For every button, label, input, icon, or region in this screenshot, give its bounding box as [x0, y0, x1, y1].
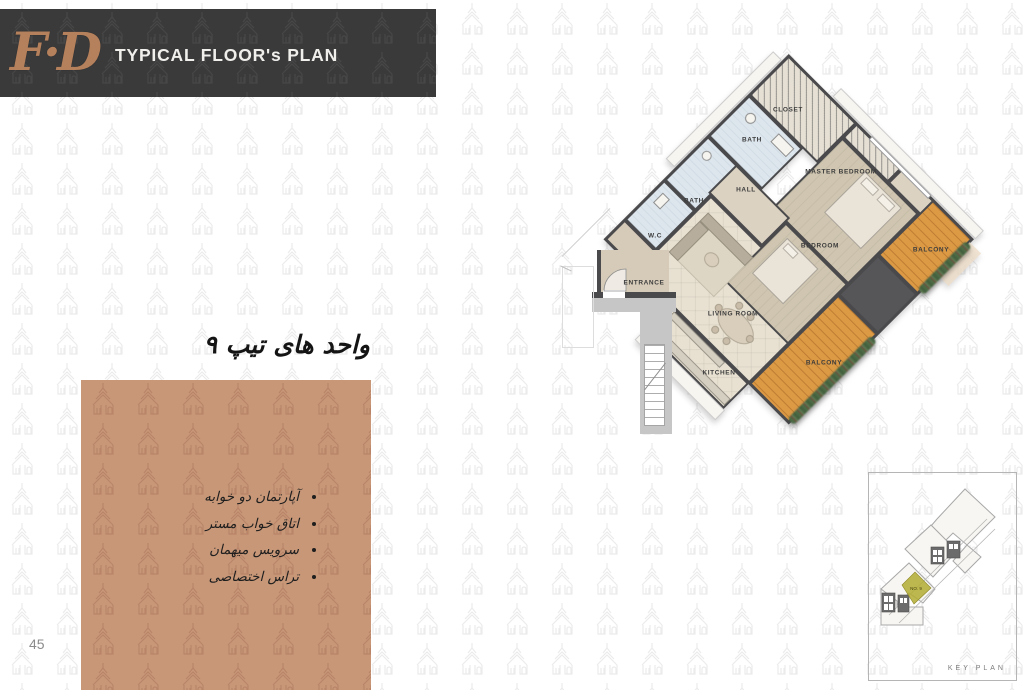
logo-monogram: F·D — [10, 17, 102, 93]
room-label: LIVING ROOM — [708, 311, 758, 318]
key-plan-drawing: NO. 9 — [869, 473, 1016, 680]
room-label: BALCONY — [806, 360, 842, 367]
adjacent-unit-outline — [562, 266, 594, 348]
common-corridor — [592, 298, 676, 312]
room-label: BATH — [742, 137, 762, 144]
room-label: W.C — [648, 233, 662, 240]
room-label: BEDROOM — [801, 243, 839, 250]
key-plan-box: NO. 9 KEY PLAN — [868, 472, 1017, 681]
room-label: BALCONY — [913, 247, 949, 254]
feature-item: سرویس میهمان — [81, 537, 301, 564]
room-label: ENTRANCE — [624, 280, 665, 287]
info-block: آپارتمان دو خوابهاتاق خواب مسترسرویس میه… — [81, 380, 371, 690]
feature-item: تراس اختصاصی — [81, 564, 301, 591]
room-label: MASTER BEDROOM — [805, 169, 877, 176]
header-bar: F·D TYPICAL FLOOR's PLAN — [0, 9, 436, 97]
page-title: TYPICAL FLOOR's PLAN — [115, 45, 338, 66]
feature-list: آپارتمان دو خوابهاتاق خواب مسترسرویس میه… — [81, 484, 371, 590]
slide: { "page": { "number": "45", "background"… — [0, 0, 1024, 690]
room-label: CLOSET — [773, 107, 803, 114]
feature-item: اتاق خواب مستر — [81, 511, 301, 538]
room-label: HALL — [736, 187, 756, 194]
unit-type-title: واحد های تیپ ۹ — [203, 330, 370, 359]
key-plan-label: KEY PLAN — [948, 665, 1006, 672]
feature-item: آپارتمان دو خوابه — [81, 484, 301, 511]
highlighted-unit-label: NO. 9 — [910, 586, 922, 591]
page-number: 45 — [29, 636, 45, 652]
room-label: KITCHEN — [702, 370, 735, 377]
room-label: BATH — [684, 198, 704, 205]
